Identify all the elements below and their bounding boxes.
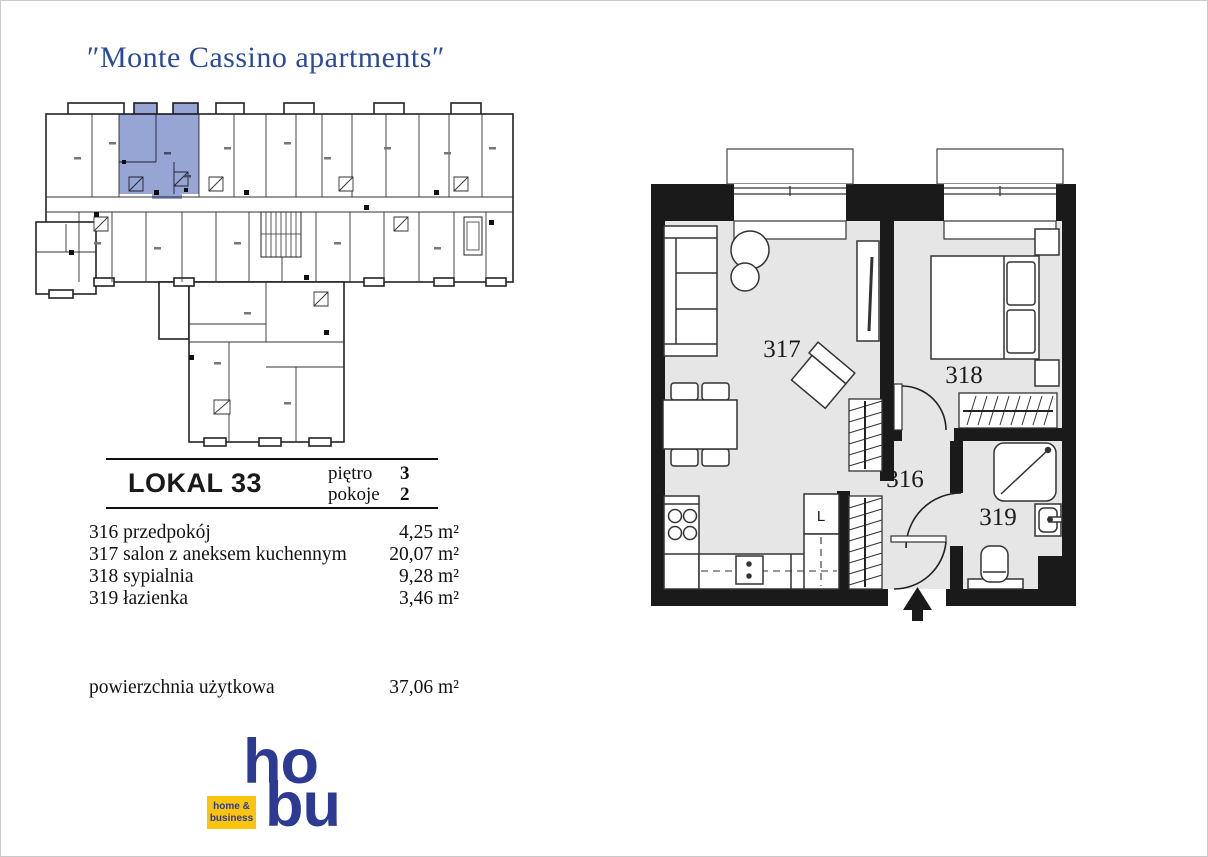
balcony-stub	[284, 103, 314, 115]
rooms-count-label: pokoje	[328, 484, 400, 505]
total-area-label: powierzchnia użytkowa	[89, 677, 275, 699]
room-list: 316 przedpokój 4,25 m² 317 salon z aneks…	[89, 522, 459, 610]
room-number: 319	[89, 588, 118, 609]
balcony	[727, 149, 1063, 184]
room-row-316: 316 przedpokój 4,25 m²	[89, 522, 459, 544]
shower	[994, 443, 1056, 501]
logo-badge-line1: home &	[213, 801, 250, 813]
balcony-stub	[374, 103, 404, 115]
room-name: salon z aneksem kuchennym	[123, 544, 347, 565]
room-label-316: 316	[886, 466, 924, 493]
floor-label: piętro	[328, 463, 400, 484]
unit-meta: piętro 3 pokoje 2	[328, 463, 410, 505]
room-name: łazienka	[123, 588, 188, 609]
logo-text-bu: bu	[265, 774, 340, 837]
rooms-count-value: 2	[400, 484, 410, 505]
bed	[931, 256, 1039, 359]
bathroom-sink	[1035, 504, 1062, 536]
room-row-317: 317 salon z aneksem kuchennym 20,07 m²	[89, 544, 459, 566]
total-area-row: powierzchnia użytkowa 37,06 m²	[89, 677, 459, 699]
floor-value: 3	[400, 463, 410, 484]
room-number: 318	[89, 566, 118, 587]
nightstand	[1035, 360, 1059, 386]
balcony-stub	[216, 103, 244, 115]
page-title: ″Monte Cassino apartments″	[87, 41, 445, 75]
room-area: 3,46 m²	[399, 588, 459, 610]
room-area: 20,07 m²	[389, 544, 459, 566]
hobu-logo: ho bu home & business	[199, 739, 359, 851]
room-name: przedpokój	[123, 522, 211, 543]
rooms-count-row: pokoje 2	[328, 484, 410, 505]
stairwell	[261, 212, 301, 257]
unit-header: LOKAL 33 piętro 3 pokoje 2	[106, 458, 438, 509]
bedroom-wardrobe	[959, 393, 1057, 428]
entrance-arrow	[903, 587, 932, 621]
logo-badge-line2: business	[210, 813, 253, 825]
offer-sheet: ″Monte Cassino apartments″	[0, 0, 1208, 857]
elevator	[464, 217, 482, 255]
room-row-319: 319 łazienka 3,46 m²	[89, 588, 459, 610]
room-name: sypialnia	[123, 566, 193, 587]
room-label-319: 319	[979, 504, 1017, 531]
nightstand	[1035, 229, 1059, 255]
floor-row: piętro 3	[328, 463, 410, 484]
unit-name: LOKAL 33	[128, 468, 262, 499]
room-number: 316	[89, 522, 118, 543]
tv-cabinet	[857, 241, 879, 341]
fridge-label: L	[817, 508, 825, 525]
room-label-317: 317	[763, 336, 801, 363]
room-row-318: 318 sypialnia 9,28 m²	[89, 566, 459, 588]
building-overview-plan	[34, 102, 516, 449]
room-area: 4,25 m²	[399, 522, 459, 544]
apartment-floor-plan: 317 318 316 319 L	[649, 141, 1079, 621]
highlighted-unit-overlay	[119, 103, 199, 199]
room-area: 9,28 m²	[399, 566, 459, 588]
room-label-318: 318	[945, 362, 983, 389]
logo-badge: home & business	[207, 796, 256, 829]
kitchen-sink-unit	[736, 556, 763, 584]
building-wing-step	[159, 282, 189, 339]
sofa	[664, 226, 717, 356]
balcony-stub	[451, 103, 481, 115]
total-area-value: 37,06 m²	[389, 677, 459, 699]
balcony-stub	[68, 103, 124, 115]
room-number: 317	[89, 544, 118, 565]
side-table-small	[731, 263, 759, 291]
